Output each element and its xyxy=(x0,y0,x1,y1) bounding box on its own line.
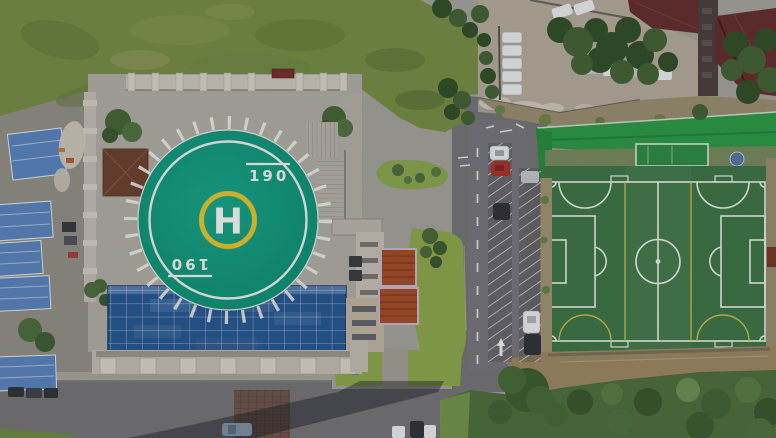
aerial-photo: H 190 190 xyxy=(0,0,776,438)
photo-grain-overlay xyxy=(0,0,776,438)
aerial-photo-canvas: H 190 190 xyxy=(0,0,776,438)
